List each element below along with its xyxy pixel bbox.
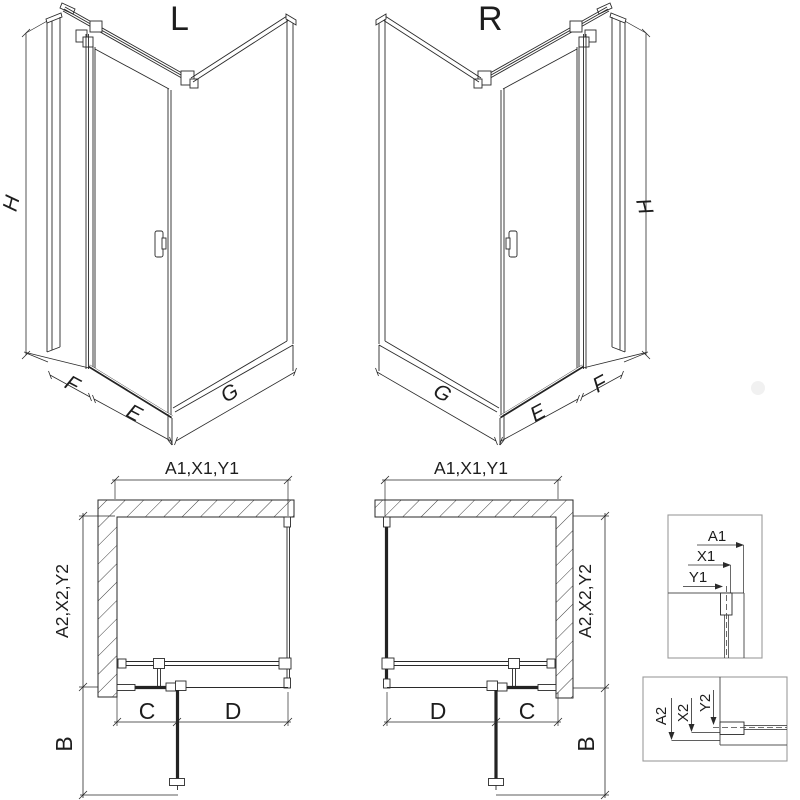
iso-right-return-label: G	[429, 379, 455, 407]
iso-right-drawing: R H F E G	[376, 0, 659, 445]
detail-x2-label: X2	[675, 704, 692, 722]
plan-left-width-label: A1,X1,Y1	[165, 458, 239, 478]
plan-left-drawing: A1,X1,Y1 C D A2,X2,Y2 B	[51, 458, 294, 799]
plan-right-front-door-label: D	[430, 698, 447, 724]
plan-left-front-door-label: D	[225, 698, 242, 724]
detail-width-box: A1 X1 Y1	[668, 515, 762, 658]
plan-right-drawing: A1,X1,Y1 D C A2,X2,Y2 B	[375, 458, 609, 799]
plan-left-swing-label: B	[51, 736, 77, 751]
detail-y1-label: Y1	[689, 569, 707, 586]
iso-left-drawing: L H F E G	[0, 0, 297, 445]
iso-right-height-label: H	[632, 196, 658, 217]
plan-right-depth-label: A2,X2,Y2	[575, 564, 595, 638]
detail-a1-label: A1	[708, 528, 726, 545]
plan-left-front-fixed-label: C	[139, 698, 156, 724]
detail-a2-label: A2	[653, 707, 670, 725]
shower-enclosure-diagram: L H F E G R H F E G A1,X1,Y1	[0, 0, 800, 800]
plan-right-swing-label: B	[573, 736, 599, 751]
iso-right-door-label: E	[526, 399, 550, 426]
technical-drawing-page: L H F E G R H F E G A1,X1,Y1	[0, 0, 800, 800]
iso-left-side-label: F	[61, 371, 84, 398]
iso-right-side-label: F	[589, 371, 612, 398]
plan-right-front-fixed-label: C	[519, 698, 536, 724]
detail-x1-label: X1	[697, 548, 715, 565]
watermark-dot	[751, 381, 765, 395]
detail-y2-label: Y2	[697, 694, 714, 712]
plan-right-width-label: A1,X1,Y1	[434, 458, 508, 478]
iso-left-height-label: H	[0, 192, 25, 213]
detail-depth-box: A2 X2 Y2	[643, 677, 787, 761]
iso-left-return-label: G	[217, 379, 243, 407]
iso-right-title: R	[478, 0, 503, 38]
plan-left-depth-label: A2,X2,Y2	[52, 564, 72, 638]
iso-left-title: L	[170, 0, 189, 38]
iso-left-door-label: E	[122, 400, 146, 427]
